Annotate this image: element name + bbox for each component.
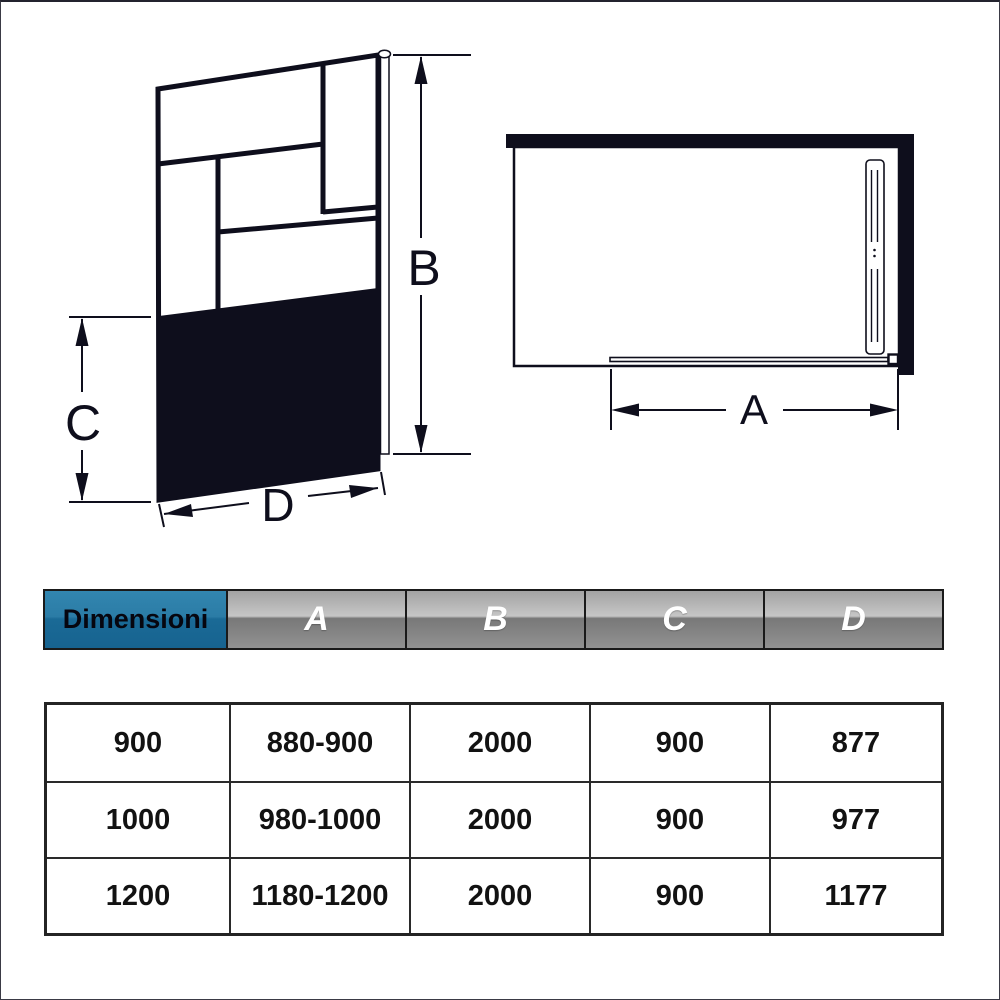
table-cell: 2000 xyxy=(409,857,589,933)
shower-tray xyxy=(514,147,899,366)
dimensions-table: 900 880-900 2000 900 877 1000 980-1000 2… xyxy=(44,702,944,936)
table-cell: 1200 xyxy=(47,857,229,933)
table-cell: 2000 xyxy=(409,781,589,857)
wall-right xyxy=(898,146,914,375)
table-cell: 900 xyxy=(589,857,769,933)
table-cell: 977 xyxy=(769,781,941,857)
table-cell: 1177 xyxy=(769,857,941,933)
dim-label-d: D xyxy=(261,479,294,531)
table-cell: 2000 xyxy=(409,705,589,781)
wall-profile-plan xyxy=(889,355,899,365)
table-cell: 900 xyxy=(589,781,769,857)
table-header-title: Dimensioni xyxy=(45,591,226,648)
tinted-lower-glass xyxy=(159,288,378,500)
table-header-col-b: B xyxy=(405,591,584,648)
dim-label-c: C xyxy=(65,395,101,451)
table-header-col-d: D xyxy=(763,591,942,648)
table-cell: 1180-1200 xyxy=(229,857,409,933)
top-view-diagram: A xyxy=(501,117,921,442)
glass-panel-plan xyxy=(610,358,888,362)
table-cell: 900 xyxy=(589,705,769,781)
dimension-b: B xyxy=(393,55,471,454)
wall-profile-cap xyxy=(379,50,391,58)
table-header-row: Dimensioni A B C D xyxy=(43,589,944,650)
table-header-col-c: C xyxy=(584,591,763,648)
table-cell: 877 xyxy=(769,705,941,781)
table-header-col-a: A xyxy=(226,591,405,648)
drain-channel xyxy=(866,160,884,354)
table-cell: 1000 xyxy=(47,781,229,857)
dim-label-a: A xyxy=(740,386,768,433)
dimension-c: C xyxy=(65,317,151,502)
table-cell: 980-1000 xyxy=(229,781,409,857)
dim-label-b: B xyxy=(407,240,440,296)
table-cell: 880-900 xyxy=(229,705,409,781)
wall-top xyxy=(506,134,914,148)
front-view-diagram: B C D xyxy=(56,32,476,552)
table-cell: 900 xyxy=(47,705,229,781)
product-spec-sheet: B C D A xyxy=(0,0,1000,1000)
dimension-a: A xyxy=(611,369,898,433)
wall-profile-bar xyxy=(381,54,390,454)
